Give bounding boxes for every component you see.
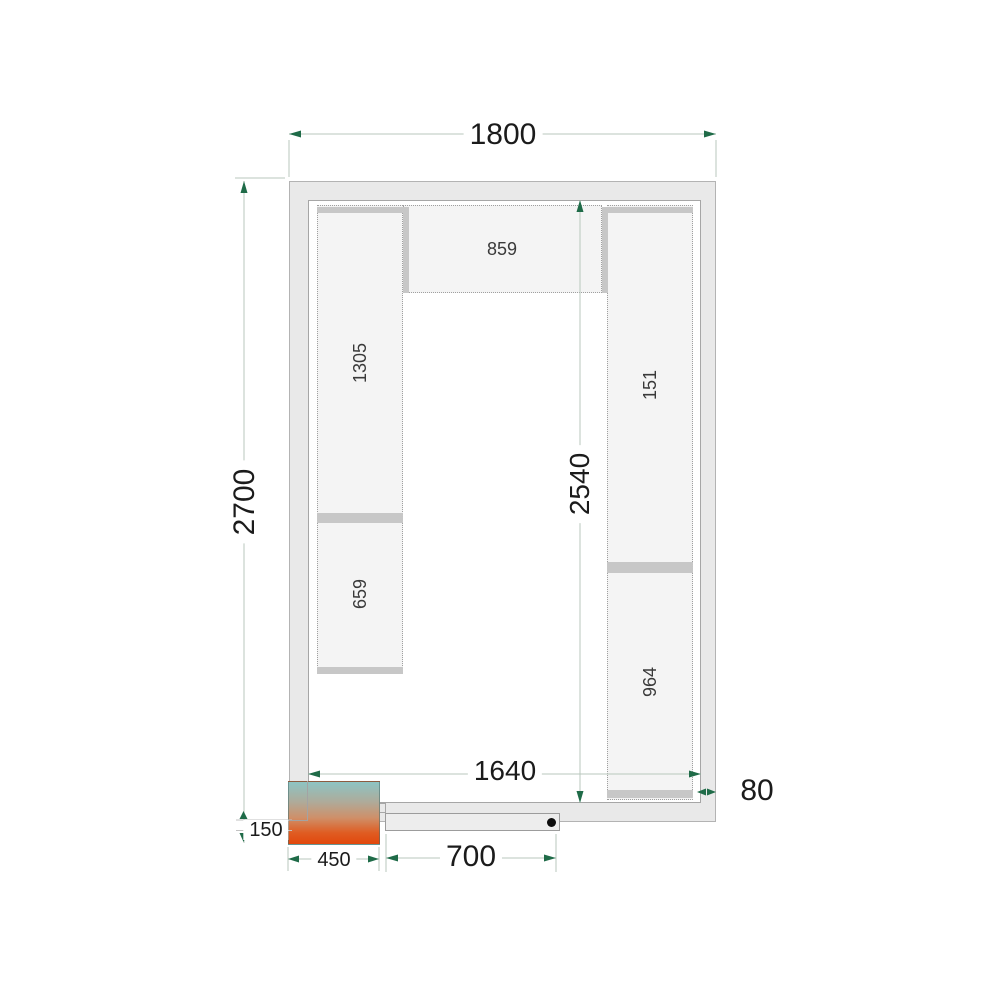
shelf-bar bbox=[403, 207, 409, 293]
shelf-bar bbox=[602, 207, 608, 293]
dim-unit-protrusion-label: 150 bbox=[243, 820, 288, 840]
shelf-right-upper-label: 151 bbox=[641, 370, 659, 400]
shelf-bar bbox=[602, 207, 693, 213]
dim-overall-depth-label: 2700 bbox=[230, 461, 260, 544]
shelf-bar bbox=[317, 207, 408, 213]
dim-overall-width-label: 1800 bbox=[464, 120, 543, 150]
shelf-left-upper-label: 1305 bbox=[351, 343, 369, 383]
shelf-bar bbox=[317, 667, 403, 674]
shelf-right-lower-label: 964 bbox=[641, 667, 659, 697]
dim-panel-thickness-label: 80 bbox=[740, 776, 773, 806]
coldroom-plan-drawing: 859 1305 659 151 964 1800 2700 2540 1640… bbox=[0, 0, 1000, 1000]
dim-inner-depth-label: 2540 bbox=[566, 445, 594, 523]
door-leaf bbox=[385, 813, 560, 831]
dim-unit-width-label: 450 bbox=[311, 850, 356, 870]
shelf-bar bbox=[317, 513, 403, 523]
shelf-bar bbox=[607, 562, 693, 573]
shelf-top-label: 859 bbox=[487, 240, 517, 258]
door-hinge-dot bbox=[547, 818, 556, 827]
shelf-right bbox=[607, 205, 693, 800]
shelf-left-lower-label: 659 bbox=[351, 579, 369, 609]
shelf-bar bbox=[607, 790, 693, 798]
dim-inner-width-label: 1640 bbox=[468, 757, 542, 785]
cooling-unit bbox=[288, 781, 380, 845]
dim-door-width-label: 700 bbox=[440, 842, 502, 872]
